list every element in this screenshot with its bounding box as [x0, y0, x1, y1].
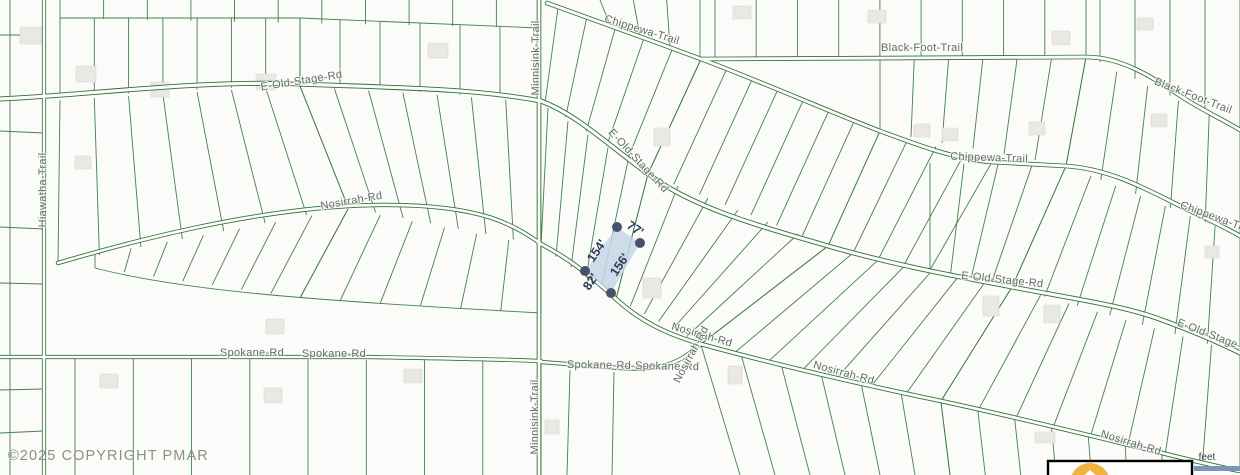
scale-bar: [1194, 466, 1240, 471]
scale-feet-label: feet: [1199, 452, 1216, 463]
lot-line: [1207, 226, 1215, 344]
lot-line: [674, 69, 727, 184]
building-footprint: [728, 366, 742, 384]
lot-line: [571, 134, 588, 267]
lot-line: [266, 88, 307, 215]
lot-line: [1165, 337, 1183, 454]
lot-line: [1004, 57, 1017, 154]
lot-line: [94, 98, 99, 255]
lot-line: [271, 216, 312, 294]
lot-line: [973, 58, 983, 149]
lot-line: [930, 162, 992, 270]
building-footprint: [654, 128, 670, 146]
lot-line: [872, 275, 959, 384]
lot-line: [673, 222, 768, 329]
lot-line: [241, 222, 275, 289]
parcel-corner-handle[interactable]: [612, 222, 622, 232]
lot-line: [854, 139, 909, 252]
street-label: Nosirrah-Rd: [320, 190, 384, 213]
building-footprint: [404, 369, 422, 383]
lot-line: [586, 28, 615, 131]
building-footprint: [1151, 114, 1167, 127]
building-footprint: [914, 124, 930, 137]
lot-line: [1170, 101, 1178, 208]
lot-boundary-line: [0, 431, 44, 433]
building-footprint: [76, 66, 96, 82]
lot-line: [421, 228, 445, 306]
lot-line: [941, 287, 1012, 401]
lot-line: [725, 90, 778, 205]
lot-line: [701, 345, 740, 475]
street-label: Black-Foot-Trail: [1153, 76, 1234, 117]
building-footprint: [942, 128, 958, 141]
lot-line: [566, 18, 587, 117]
building-footprint: [545, 420, 559, 434]
lot-line: [1066, 57, 1086, 166]
building-footprint: [1137, 18, 1153, 30]
lot-line: [212, 229, 240, 285]
lot-line: [1110, 196, 1141, 315]
lot-line: [1175, 216, 1190, 334]
street-label: Spokane-Rd: [302, 348, 366, 360]
building-footprint: [428, 43, 448, 58]
lot-boundary-line: [612, 372, 614, 475]
lot-line: [1205, 115, 1209, 222]
copyright-text: ©2025 COPYRIGHT PMAR: [8, 448, 209, 464]
building-footprint: [983, 296, 999, 316]
building-footprint: [20, 27, 42, 44]
lot-line: [340, 215, 380, 300]
logo-panel: [1048, 461, 1192, 475]
lot-boundary-line: [95, 268, 541, 313]
building-footprint: [75, 156, 91, 169]
lot-line: [154, 242, 168, 277]
lot-line: [501, 240, 509, 311]
lot-line: [461, 234, 477, 308]
building-footprint: [264, 388, 282, 403]
lot-boundary-line: [567, 370, 570, 475]
street-label: Chippewa-Trail: [950, 151, 1028, 166]
lot-line: [879, 147, 936, 259]
lot-line: [777, 110, 829, 225]
logo-panel-background: [1048, 461, 1192, 475]
map-viewport[interactable]: 154' 77' 156' 82' Chippewa-TrailBlack-Fo…: [0, 0, 1240, 475]
building-footprint: [1052, 31, 1070, 45]
plat-map[interactable]: 154' 77' 156' 82' Chippewa-TrailBlack-Fo…: [0, 0, 1240, 475]
street-label: Minnisink-Trail: [529, 380, 541, 455]
street-label: Black-Foot-Trail: [881, 42, 963, 54]
lot-line: [941, 402, 950, 475]
lot-line: [901, 393, 915, 475]
building-footprint: [643, 278, 661, 298]
lot-boundary-line: [0, 283, 44, 284]
building-footprint: [868, 10, 886, 23]
lot-line: [163, 94, 182, 239]
parcel-corner-handle[interactable]: [635, 238, 645, 248]
lot-line: [971, 165, 998, 279]
lot-line: [861, 383, 880, 475]
lot-line: [978, 411, 986, 475]
lot-line: [545, 8, 558, 103]
lot-line: [380, 221, 412, 303]
lot-line: [992, 165, 1033, 282]
road-casing: [58, 205, 541, 263]
lot-line: [300, 209, 348, 298]
lot-line: [1077, 186, 1116, 306]
lot-line: [58, 100, 60, 263]
building-footprint: [1205, 246, 1219, 258]
street-label: E-Old-Stage-Rd: [1175, 317, 1240, 358]
lot-line: [1053, 312, 1097, 428]
lot-line: [1045, 176, 1091, 296]
lot-line: [802, 121, 854, 236]
lot-line: [197, 92, 224, 231]
lot-line: [648, 59, 701, 174]
lot-line: [828, 131, 880, 246]
lot-line: [1203, 345, 1212, 463]
lot-line: [300, 86, 348, 207]
lot-boundary-line: [0, 131, 44, 133]
lot-line: [951, 164, 965, 274]
lot-line: [1016, 304, 1069, 419]
lot-line: [1142, 206, 1165, 325]
lot-line: [1015, 419, 1021, 475]
lot-line: [751, 100, 803, 215]
building-footprint: [1035, 432, 1055, 443]
building-footprint: [100, 374, 118, 388]
lot-line: [183, 235, 204, 281]
building-footprint: [733, 6, 751, 19]
lot-line: [1128, 328, 1155, 445]
lot-boundary-line: [0, 389, 44, 390]
lot-line: [541, 108, 548, 246]
lot-line: [129, 96, 141, 247]
lot-line: [701, 246, 828, 344]
lot-line: [124, 248, 131, 272]
lot-line: [506, 100, 514, 240]
lot-line: [1035, 57, 1052, 160]
lot-line: [1012, 166, 1066, 287]
lot-line: [1101, 72, 1117, 180]
lot-line: [905, 154, 965, 264]
building-footprint: [266, 319, 284, 334]
lot-line: [781, 364, 810, 475]
street-label: Nosirrah-Rd: [812, 359, 876, 387]
lot-line: [1091, 320, 1127, 436]
building-footprint: [1044, 305, 1060, 323]
street-label: Spokane-Rd: [220, 347, 284, 359]
lot-line: [699, 80, 752, 195]
lot-line: [907, 281, 986, 393]
lot-line: [556, 121, 568, 256]
street-label: Hiawatha-Trail: [37, 153, 49, 228]
street-label: Minnisink-Trail: [530, 21, 542, 96]
scale-indicator: feet: [1194, 452, 1240, 471]
lot-line: [741, 355, 775, 475]
building-footprint: [1029, 122, 1045, 135]
lot-line: [1136, 86, 1148, 194]
lot-line: [821, 374, 845, 475]
lot-line: [687, 234, 798, 337]
parcel-corner-handle[interactable]: [606, 288, 616, 298]
lot-line: [231, 90, 265, 223]
